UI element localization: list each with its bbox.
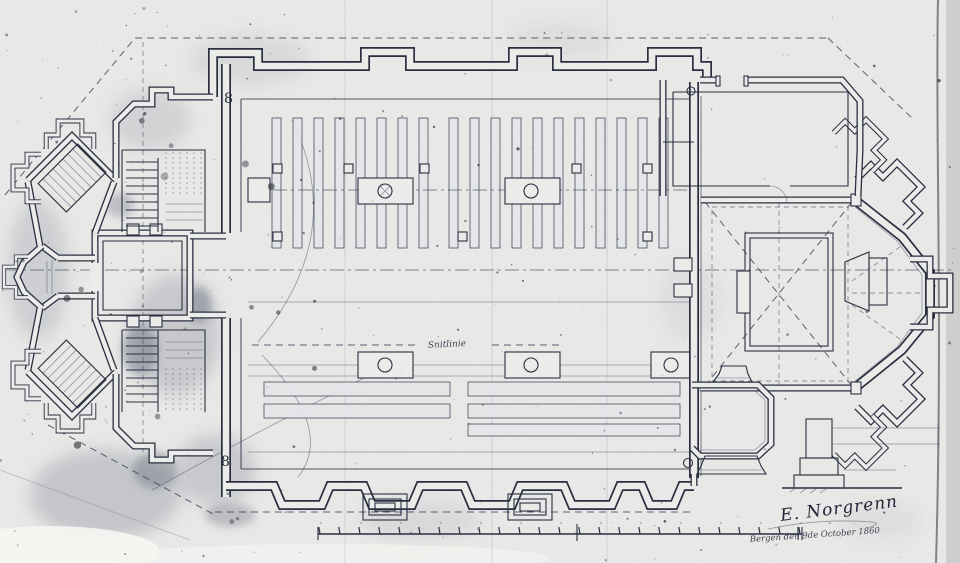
plan-figure-8-bottom: 8: [221, 454, 230, 470]
plan-figure-8-top: 8: [224, 91, 233, 107]
plan-drawing-canvas: 8 8 Snitlinie E. Norgrenn Bergen den 9de…: [0, 0, 960, 563]
paper-texture: [0, 0, 960, 563]
center-line-annotation: Snitlinie: [428, 339, 467, 351]
scanned-plan-sheet: 8 8 Snitlinie E. Norgrenn Bergen den 9de…: [0, 0, 960, 563]
chancel-arch-pier: [674, 284, 692, 297]
chancel-arch-pier: [674, 258, 692, 271]
